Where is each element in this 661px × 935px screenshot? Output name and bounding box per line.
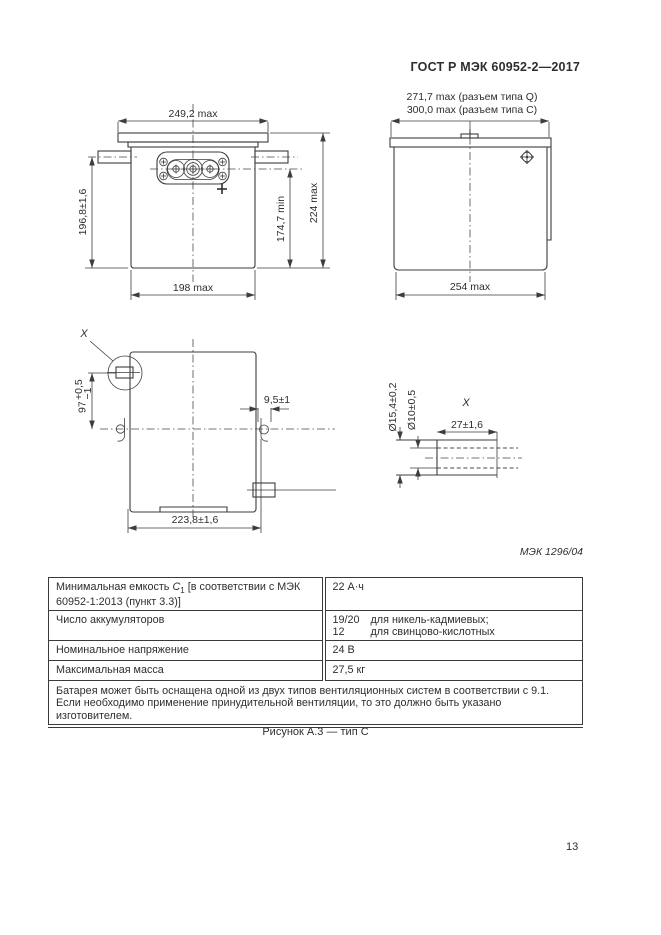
spec-label-voltage: Номинальное напряжение bbox=[49, 641, 324, 661]
spec-value-voltage: 24 В bbox=[324, 641, 583, 661]
page-number: 13 bbox=[566, 841, 578, 853]
dim-body-depth-top: 223,8±1,6 bbox=[172, 514, 219, 526]
battery-body-side bbox=[394, 147, 547, 270]
svg-text:−1: −1 bbox=[82, 387, 94, 399]
spec-label-capacity: Минимальная емкость C1 [в соответствии с… bbox=[49, 578, 324, 611]
svg-text:97: 97 bbox=[77, 401, 89, 413]
vent-target-icon bbox=[521, 151, 534, 164]
table-note-row: Батарея может быть оснащена одной из дву… bbox=[49, 681, 583, 726]
table-row: Число аккумуляторов 19/20для никель-кадм… bbox=[49, 611, 583, 641]
spec-label-mass: Максимальная масса bbox=[49, 661, 324, 681]
detail-x-drawing: X Ø15,4±0,2 Ø10±0,5 27±1,6 bbox=[360, 360, 540, 500]
spec-label-cell-count: Число аккумуляторов bbox=[49, 611, 324, 641]
dim-mount-height: 196,8±1,6 bbox=[77, 189, 89, 236]
clip-left bbox=[116, 418, 124, 441]
dim-terminal-height: 174,7 min bbox=[275, 196, 287, 242]
table-row: Максимальная масса 27,5 кг bbox=[49, 661, 583, 681]
front-view-drawing: 249,2 max 196,8±1,6 174,7 min 224 max 19… bbox=[75, 100, 355, 305]
figure-caption: Рисунок А.3 — тип С bbox=[48, 726, 583, 738]
battery-lid-side bbox=[390, 138, 551, 147]
dim-total-height: 224 max bbox=[308, 182, 320, 223]
spec-table: Минимальная емкость C1 [в соответствии с… bbox=[48, 577, 583, 728]
dim-width-connector-c: 300,0 max (разъем типа C) bbox=[407, 104, 537, 116]
table-note: Батарея может быть оснащена одной из дву… bbox=[49, 681, 583, 726]
detail-callout-label: X bbox=[79, 328, 88, 340]
spec-value-mass: 27,5 кг bbox=[324, 661, 583, 681]
page-header: ГОСТ Р МЭК 60952-2—2017 bbox=[300, 60, 580, 74]
dim-body-depth: 254 max bbox=[450, 281, 491, 293]
dim-outer-diameter: Ø15,4±0,2 bbox=[387, 382, 399, 431]
dim-inner-diameter: Ø10±0,5 bbox=[406, 390, 418, 430]
polarity-plus-icon bbox=[217, 184, 227, 194]
table-row: Минимальная емкость C1 [в соответствии с… bbox=[49, 578, 583, 611]
bottom-recess bbox=[160, 507, 227, 512]
spec-value-cell-count: 19/20для никель-кадмиевых; 12для свинцов… bbox=[324, 611, 583, 641]
dim-terminal-offset: 97 +0,5 −1 bbox=[73, 379, 94, 413]
dim-body-width: 198 max bbox=[173, 282, 214, 294]
dim-lug-width: 9,5±1 bbox=[264, 394, 290, 406]
dim-length: 27±1,6 bbox=[451, 419, 483, 431]
top-view-drawing: X 97 +0,5 −1 bbox=[60, 325, 340, 540]
side-view-drawing: 271,7 max (разъем типа Q) 300,0 max (раз… bbox=[380, 88, 565, 303]
drawing-source-ref: МЭК 1296/04 bbox=[403, 546, 583, 558]
connector-housing-edge bbox=[547, 147, 551, 240]
detail-x-label: X bbox=[461, 397, 470, 409]
document-page: ГОСТ Р МЭК 60952-2—2017 bbox=[0, 0, 661, 935]
dim-width-connector-q: 271,7 max (разъем типа Q) bbox=[407, 91, 538, 103]
table-row: Номинальное напряжение 24 В bbox=[49, 641, 583, 661]
clip-right bbox=[260, 418, 269, 441]
dim-flange-width: 249,2 max bbox=[168, 108, 218, 120]
spec-value-capacity: 22 А·ч bbox=[324, 578, 583, 611]
